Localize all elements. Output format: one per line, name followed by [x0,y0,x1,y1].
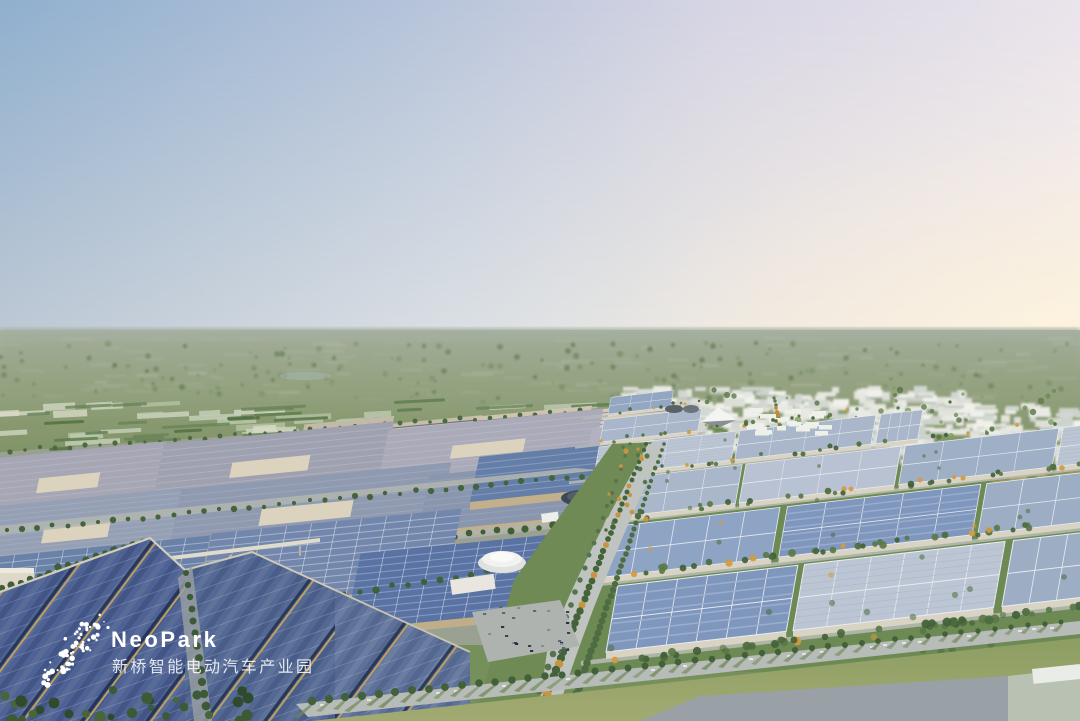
svg-text:新桥智能电动汽车产业园: 新桥智能电动汽车产业园 [112,658,314,676]
svg-text:NeoPark: NeoPark [111,627,218,652]
